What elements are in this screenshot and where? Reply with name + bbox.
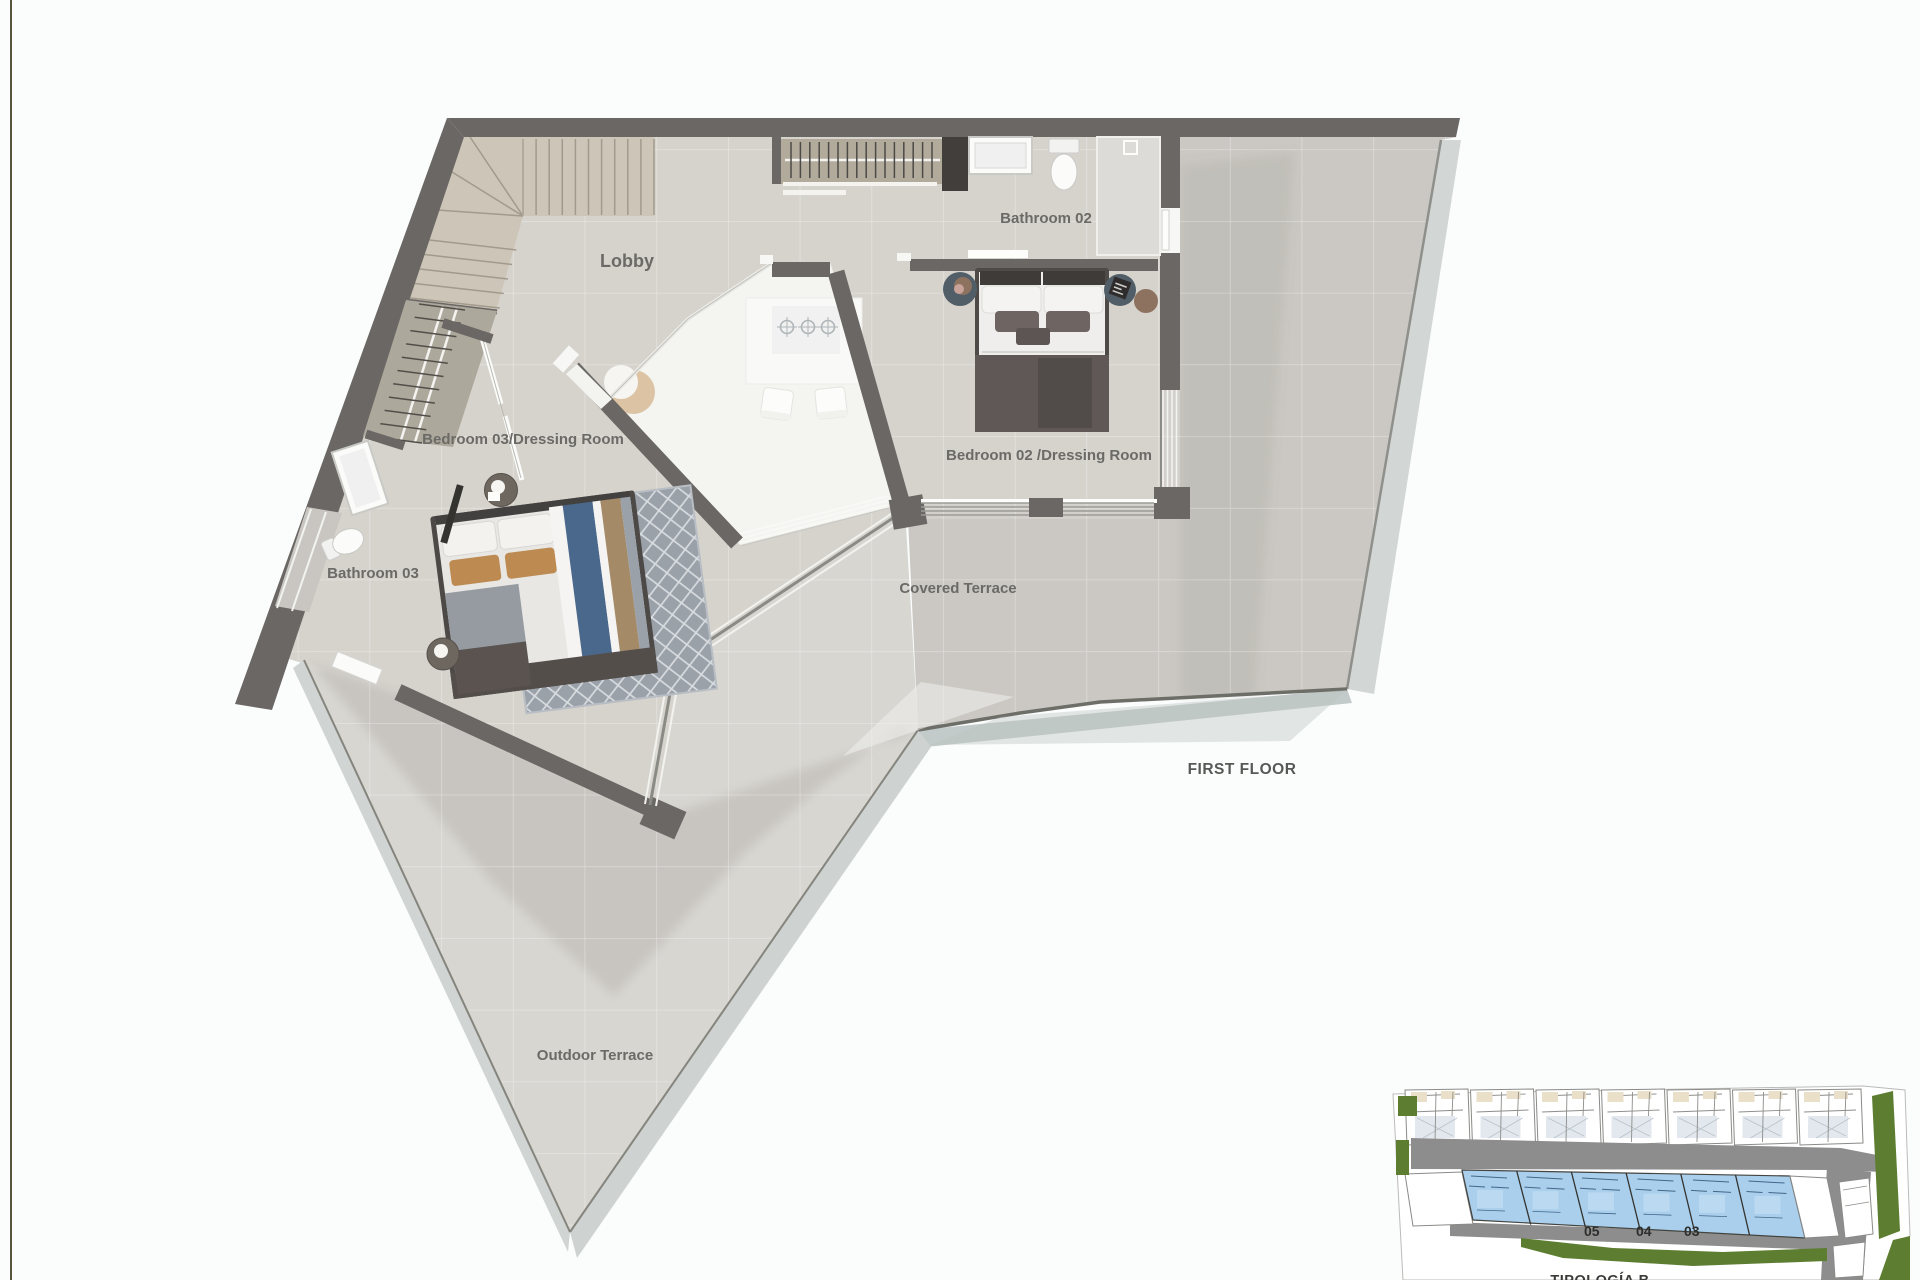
svg-text:Bathroom 03: Bathroom 03 <box>327 565 419 582</box>
svg-text:05: 05 <box>1584 1223 1600 1239</box>
svg-text:Lobby: Lobby <box>600 251 654 271</box>
svg-text:04: 04 <box>1636 1223 1652 1239</box>
svg-text:Bedroom 02 /Dressing Room: Bedroom 02 /Dressing Room <box>946 447 1152 464</box>
svg-text:TIPOLOGÍA B: TIPOLOGÍA B <box>1550 1272 1649 1280</box>
svg-text:Covered Terrace: Covered Terrace <box>899 580 1016 597</box>
svg-text:Outdoor Terrace: Outdoor Terrace <box>537 1047 653 1064</box>
svg-text:FIRST FLOOR: FIRST FLOOR <box>1188 761 1297 778</box>
svg-text:Bedroom 03/Dressing Room: Bedroom 03/Dressing Room <box>422 431 624 448</box>
svg-text:03: 03 <box>1684 1223 1700 1239</box>
svg-text:Bathroom 02: Bathroom 02 <box>1000 210 1092 227</box>
